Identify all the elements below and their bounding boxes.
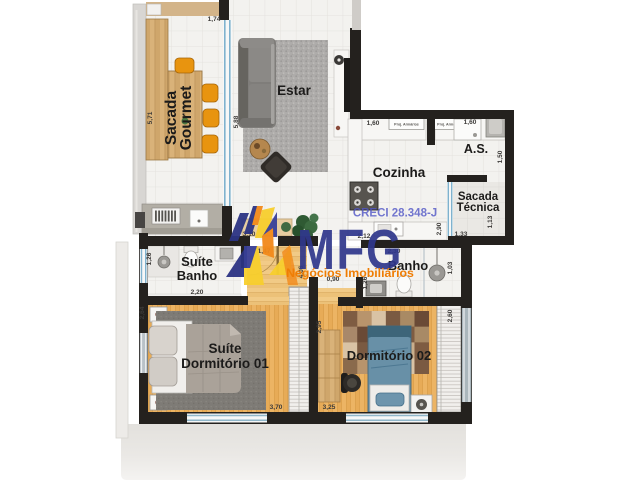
svg-text:2,60: 2,60 — [447, 309, 454, 322]
svg-text:5,71: 5,71 — [147, 111, 154, 124]
svg-text:3,25: 3,25 — [323, 404, 336, 411]
svg-text:1,13: 1,13 — [487, 215, 494, 228]
svg-text:Proj. Armários: Proj. Armários — [394, 123, 419, 127]
svg-text:1,26: 1,26 — [146, 252, 153, 265]
svg-text:2,20: 2,20 — [191, 289, 204, 296]
svg-text:1,60: 1,60 — [464, 119, 477, 126]
svg-text:A.S.: A.S. — [464, 142, 488, 156]
svg-text:Suíte: Suíte — [181, 254, 213, 269]
svg-text:2,64: 2,64 — [139, 306, 146, 319]
svg-text:1,03: 1,03 — [447, 261, 454, 274]
svg-text:Dormitório 01: Dormitório 01 — [181, 356, 269, 371]
svg-text:5,88: 5,88 — [233, 115, 240, 128]
svg-text:3,70: 3,70 — [270, 404, 283, 411]
svg-text:2,95: 2,95 — [316, 320, 323, 333]
svg-text:Estar: Estar — [277, 83, 312, 98]
svg-text:Banho: Banho — [177, 268, 218, 283]
svg-text:1,74: 1,74 — [208, 16, 221, 23]
svg-text:2,90: 2,90 — [436, 222, 443, 235]
svg-text:Suíte: Suíte — [208, 341, 241, 356]
svg-text:Gourmet: Gourmet — [178, 86, 195, 151]
svg-text:Cozinha: Cozinha — [373, 165, 426, 180]
svg-text:Dormitório 02: Dormitório 02 — [347, 348, 432, 363]
svg-text:1,60: 1,60 — [367, 120, 380, 127]
svg-text:Técnica: Técnica — [457, 202, 500, 214]
svg-text:Negócios Imobiliários: Negócios Imobiliários — [286, 266, 414, 280]
svg-text:1,50: 1,50 — [497, 150, 504, 163]
svg-text:1,33: 1,33 — [455, 231, 468, 238]
